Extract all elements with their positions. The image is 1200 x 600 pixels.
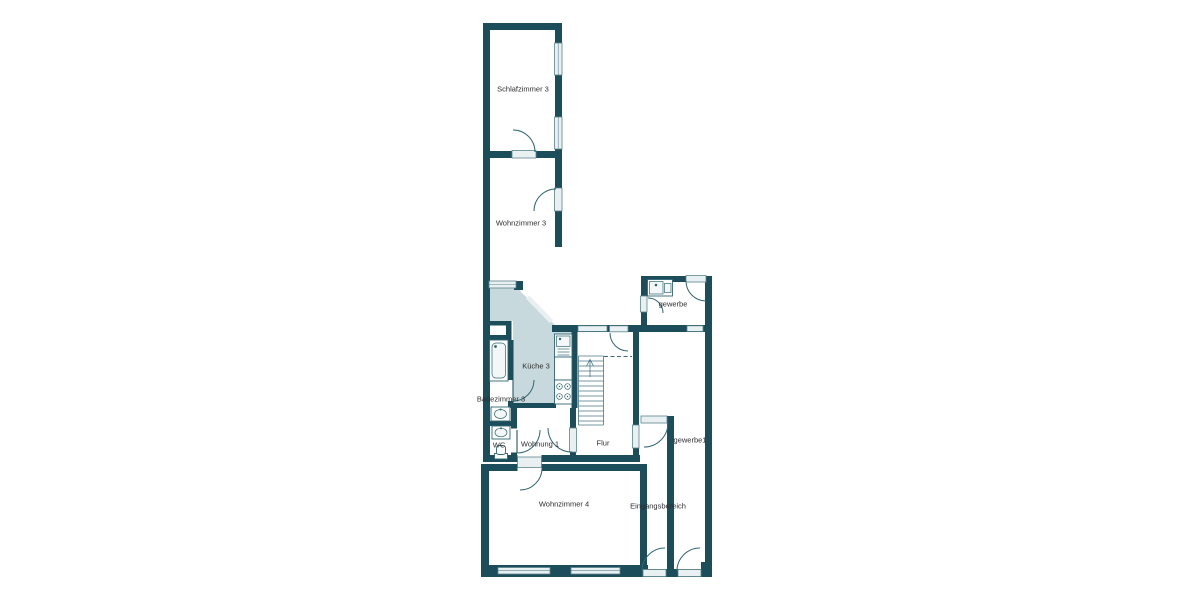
floorplan-drawing — [0, 0, 1200, 600]
room-label-badezimmer3: Badezimmer 3 — [477, 395, 525, 403]
door-sill — [555, 188, 563, 211]
eingang-top-door-arc — [644, 423, 668, 447]
wall-diagonal — [523, 245, 558, 290]
wall — [481, 464, 489, 577]
room-label-flur: Flur — [597, 439, 610, 447]
wall — [508, 340, 514, 380]
room-label-schlafzimmer3: Schlafzimmer 3 — [497, 85, 549, 93]
wall — [483, 23, 562, 30]
kitchen-counter — [555, 357, 573, 380]
door-gap — [511, 429, 517, 453]
room-label-gewerbe1: gewerbe1 — [674, 436, 707, 444]
room-label-wohnung1: Wohnung 1 — [521, 440, 559, 448]
wc-sink-icon — [492, 426, 510, 439]
stove-icon — [555, 380, 573, 404]
schlafzimmer-door-arc — [513, 130, 535, 152]
wall — [640, 464, 647, 570]
window — [641, 296, 648, 312]
wall — [481, 464, 647, 471]
wohnzimmer3-door-arc — [534, 189, 556, 211]
door-leaf-sill — [610, 326, 629, 332]
stairs — [579, 356, 633, 425]
door-sill — [518, 457, 542, 468]
wall — [487, 335, 511, 340]
door-sill — [570, 428, 577, 452]
gewerbe-sink-icon — [648, 280, 673, 297]
room-label-kueche3: Küche 3 — [522, 362, 550, 370]
door-sill — [641, 416, 667, 423]
entry-door-sill — [643, 570, 666, 577]
floorplan-canvas: Schlafzimmer 3 Wohnzimmer 3 Küche 3 Bade… — [0, 0, 1200, 600]
wall — [705, 276, 712, 577]
kitchen-sink-icon — [555, 334, 573, 357]
room-label-wohnzimmer3: Wohnzimmer 3 — [496, 219, 546, 227]
gewerbe-top-door-arc — [686, 281, 706, 301]
wall — [701, 562, 712, 577]
entry-door2-arc — [677, 548, 700, 571]
stair-direction-arrow-icon — [587, 360, 594, 378]
room-label-wohnzimmer4: Wohnzimmer 4 — [539, 500, 589, 508]
room-label-wc: WC — [493, 441, 506, 449]
room-label-eingangsbereich: Eingangsbereich — [630, 502, 686, 510]
room-label-gewerbe: gewerbe — [659, 300, 688, 308]
window — [578, 326, 607, 332]
door-sill — [686, 276, 706, 283]
window — [687, 326, 703, 332]
flur-top-door-arc — [610, 333, 628, 351]
bathroom-sink-icon — [491, 407, 510, 421]
door-sill — [512, 151, 536, 159]
bathtub-icon — [490, 340, 509, 381]
wall — [487, 421, 513, 426]
wohnzimmer4-door-arc — [520, 468, 542, 490]
glass-panel — [633, 425, 640, 448]
wall — [513, 403, 556, 408]
entry-door-sill — [678, 570, 701, 577]
